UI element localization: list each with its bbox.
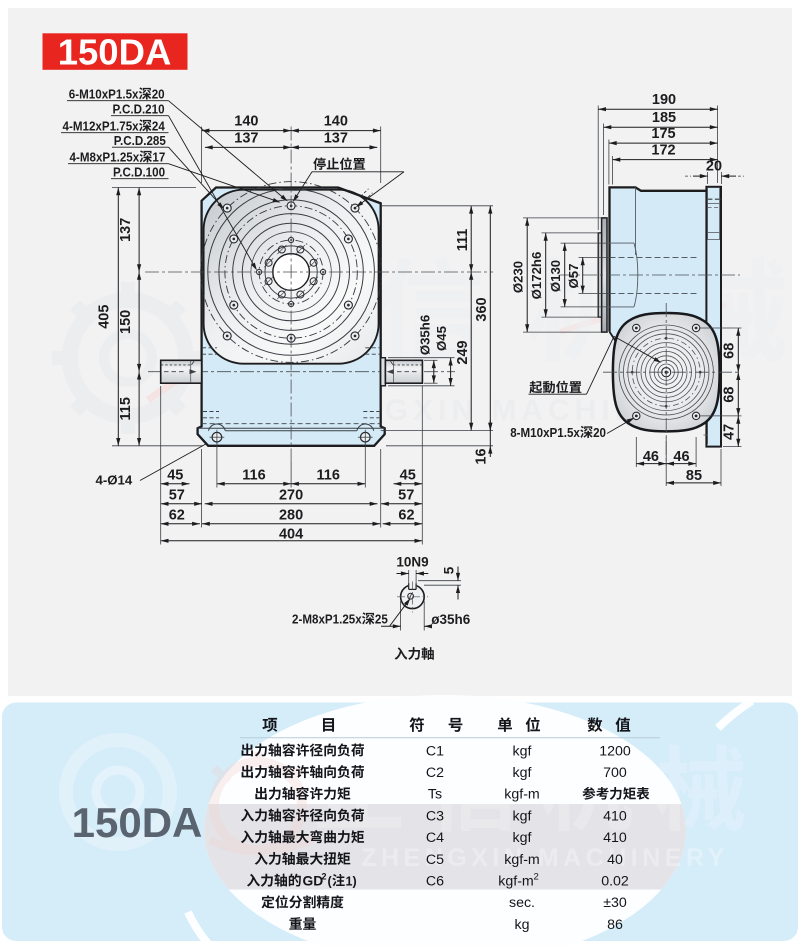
svg-text:16: 16 [474,448,490,464]
svg-text:57: 57 [169,487,185,503]
svg-text:C4: C4 [426,830,444,846]
svg-text:10N9: 10N9 [396,555,428,570]
svg-text:137: 137 [234,130,258,146]
svg-text:410: 410 [603,830,627,846]
svg-text:24: 24 [152,119,165,134]
svg-text:404: 404 [279,527,303,543]
svg-text:C1: C1 [426,743,444,759]
svg-text:kgf-m: kgf-m [498,874,533,890]
svg-text:1200: 1200 [599,743,631,759]
svg-text:46: 46 [673,449,689,465]
svg-text:Ø57: Ø57 [566,264,581,289]
svg-text:25: 25 [375,612,388,627]
svg-text:Ø230: Ø230 [510,261,525,293]
svg-text:137: 137 [118,218,134,242]
svg-text:150DA: 150DA [72,799,203,846]
svg-text:85: 85 [686,468,702,484]
svg-text:360: 360 [474,297,490,321]
svg-text:C3: C3 [426,808,444,824]
svg-text:ø35h6: ø35h6 [431,612,471,627]
svg-text:Ø172h6: Ø172h6 [529,252,544,300]
svg-text:Ts: Ts [428,787,442,803]
svg-text:20: 20 [593,425,606,440]
svg-text:Ø35h6: Ø35h6 [417,315,432,355]
svg-text:20: 20 [706,159,722,175]
svg-text:405: 405 [97,305,113,329]
svg-text:45: 45 [400,467,416,483]
svg-text:P.C.D.100: P.C.D.100 [113,165,165,180]
svg-text:4-M12xP1.75x: 4-M12xP1.75x [63,119,139,134]
svg-text:kgf-m: kgf-m [504,852,539,868]
svg-text:57: 57 [398,487,414,503]
svg-text:410: 410 [603,808,627,824]
svg-text:±30: ±30 [603,895,627,911]
svg-text:kgf-m: kgf-m [504,787,539,803]
svg-text:2-M8xP1.25x: 2-M8xP1.25x [292,612,362,627]
svg-text:2: 2 [534,872,539,883]
svg-text:8-M10xP1.5x: 8-M10xP1.5x [510,425,580,440]
svg-text:20: 20 [152,87,165,102]
svg-text:C2: C2 [426,765,444,781]
svg-text:4-Ø14: 4-Ø14 [96,473,133,488]
svg-text:ZHENGXIN MACHINERY: ZHENGXIN MACHINERY [361,844,729,872]
svg-text:6-M10xP1.5x: 6-M10xP1.5x [69,87,139,102]
svg-text:C5: C5 [426,852,444,868]
svg-text:5: 5 [441,566,456,574]
svg-text:270: 270 [279,487,303,503]
svg-text:GD: GD [303,874,324,889]
svg-text:68: 68 [722,387,738,403]
svg-text:kgf: kgf [513,765,532,781]
svg-text:P.C.D.210: P.C.D.210 [113,102,165,117]
svg-text:140: 140 [234,114,258,130]
svg-text:172: 172 [651,143,675,159]
svg-text:150: 150 [118,310,134,334]
svg-text:140: 140 [324,114,348,130]
svg-text:249: 249 [455,340,471,364]
svg-text:1): 1) [346,875,357,889]
svg-text:185: 185 [652,110,676,126]
svg-text:45: 45 [167,467,183,483]
svg-text:kg: kg [515,917,530,933]
svg-text:137: 137 [324,130,348,146]
svg-text:17: 17 [152,150,165,165]
svg-text:4-M8xP1.25x: 4-M8xP1.25x [70,150,140,165]
svg-text:40: 40 [607,852,623,868]
svg-text:86: 86 [607,917,623,933]
svg-text:sec.: sec. [509,895,535,911]
svg-text:0.02: 0.02 [601,874,629,890]
svg-text:kgf: kgf [513,830,532,846]
svg-text:Ø45: Ø45 [434,326,449,351]
svg-text:116: 116 [316,467,339,483]
svg-text:116: 116 [242,467,265,483]
svg-text:190: 190 [652,92,676,108]
svg-text:115: 115 [118,397,134,420]
svg-text:Ø130: Ø130 [548,260,563,292]
svg-text:68: 68 [722,343,738,359]
svg-text:62: 62 [169,507,185,523]
svg-text:kgf: kgf [513,743,532,759]
svg-text:C6: C6 [426,874,444,890]
svg-text:150DA: 150DA [58,32,172,73]
svg-text:62: 62 [398,507,414,523]
svg-text:700: 700 [603,765,627,781]
svg-text:46: 46 [643,449,659,465]
svg-text:2: 2 [322,872,327,882]
svg-text:280: 280 [279,507,303,523]
svg-text:175: 175 [651,126,675,142]
svg-text:kgf: kgf [513,808,532,824]
svg-text:47: 47 [722,424,738,440]
svg-text:P.C.D.285: P.C.D.285 [114,133,166,148]
svg-text:111: 111 [455,229,471,252]
